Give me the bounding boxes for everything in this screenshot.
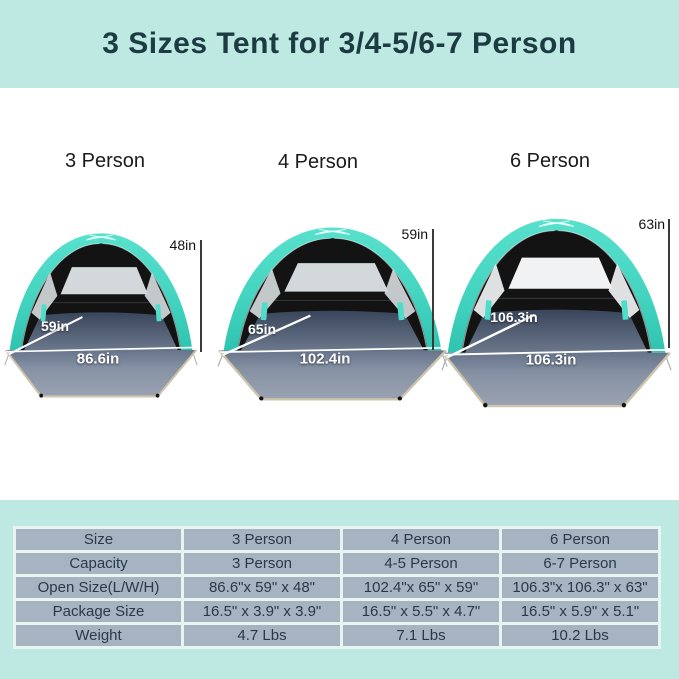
tent-illustration-6-person [441, 215, 672, 409]
spec-row-package-size: Package Size 16.5" x 3.9" x 3.9" 16.5" x… [16, 601, 658, 622]
depth-label-3: 106.3in [490, 309, 537, 325]
spec-cell: 86.6"x 59" x 48" [184, 577, 340, 598]
spec-row-label: Package Size [16, 601, 181, 622]
tent-name-4-person: 4 Person [278, 151, 358, 174]
spec-cell: 4 Person [343, 529, 499, 550]
tent-name-3-person: 3 Person [65, 150, 145, 173]
spec-row-capacity: Capacity 3 Person 4-5 Person 6-7 Person [16, 553, 658, 574]
spec-row-label: Capacity [16, 553, 181, 574]
height-measure-line-1 [200, 240, 202, 352]
spec-cell: 10.2 Lbs [502, 625, 658, 646]
depth-label-1: 59in [41, 318, 69, 334]
spec-row-label: Weight [16, 625, 181, 646]
width-label-3: 106.3in [526, 352, 577, 369]
spec-cell: 7.1 Lbs [343, 625, 499, 646]
spec-cell: 16.5" x 3.9" x 3.9" [184, 601, 340, 622]
height-label-3: 63in [639, 216, 665, 232]
depth-label-2: 65in [248, 321, 276, 337]
tent-name-6-person: 6 Person [510, 150, 590, 173]
spec-cell: 16.5" x 5.5" x 4.7" [343, 601, 499, 622]
width-label-1: 86.6in [77, 351, 120, 368]
spec-cell: 102.4"x 65" x 59" [343, 577, 499, 598]
spec-cell: 3 Person [184, 529, 340, 550]
page-title: 3 Sizes Tent for 3/4-5/6-7 Person [102, 27, 576, 61]
spec-table: Size 3 Person 4 Person 6 Person Capacity… [13, 526, 661, 649]
spec-row-size: Size 3 Person 4 Person 6 Person [16, 529, 658, 550]
spec-section: Size 3 Person 4 Person 6 Person Capacity… [0, 500, 679, 679]
spec-cell: 4.7 Lbs [184, 625, 340, 646]
height-measure-line-3 [668, 219, 670, 348]
spec-cell: 106.3"x 106.3" x 63" [502, 577, 658, 598]
spec-row-label: Open Size(L/W/H) [16, 577, 181, 598]
spec-row-weight: Weight 4.7 Lbs 7.1 Lbs 10.2 Lbs [16, 625, 658, 646]
tent-illustration-3-person [4, 230, 198, 399]
spec-cell: 6-7 Person [502, 553, 658, 574]
tent-size-infographic: 3 Sizes Tent for 3/4-5/6-7 Person [0, 0, 679, 679]
spec-row-open-size: Open Size(L/W/H) 86.6"x 59" x 48" 102.4"… [16, 577, 658, 598]
spec-cell: 3 Person [184, 553, 340, 574]
spec-cell: 4-5 Person [343, 553, 499, 574]
tent-illustration-4-person [217, 224, 448, 402]
spec-cell: 16.5" x 5.9" x 5.1" [502, 601, 658, 622]
height-label-2: 59in [402, 226, 428, 242]
height-measure-line-2 [432, 229, 434, 350]
height-label-1: 48in [170, 237, 196, 253]
spec-row-label: Size [16, 529, 181, 550]
header-banner: 3 Sizes Tent for 3/4-5/6-7 Person [0, 0, 679, 88]
spec-cell: 6 Person [502, 529, 658, 550]
width-label-2: 102.4in [300, 351, 351, 368]
